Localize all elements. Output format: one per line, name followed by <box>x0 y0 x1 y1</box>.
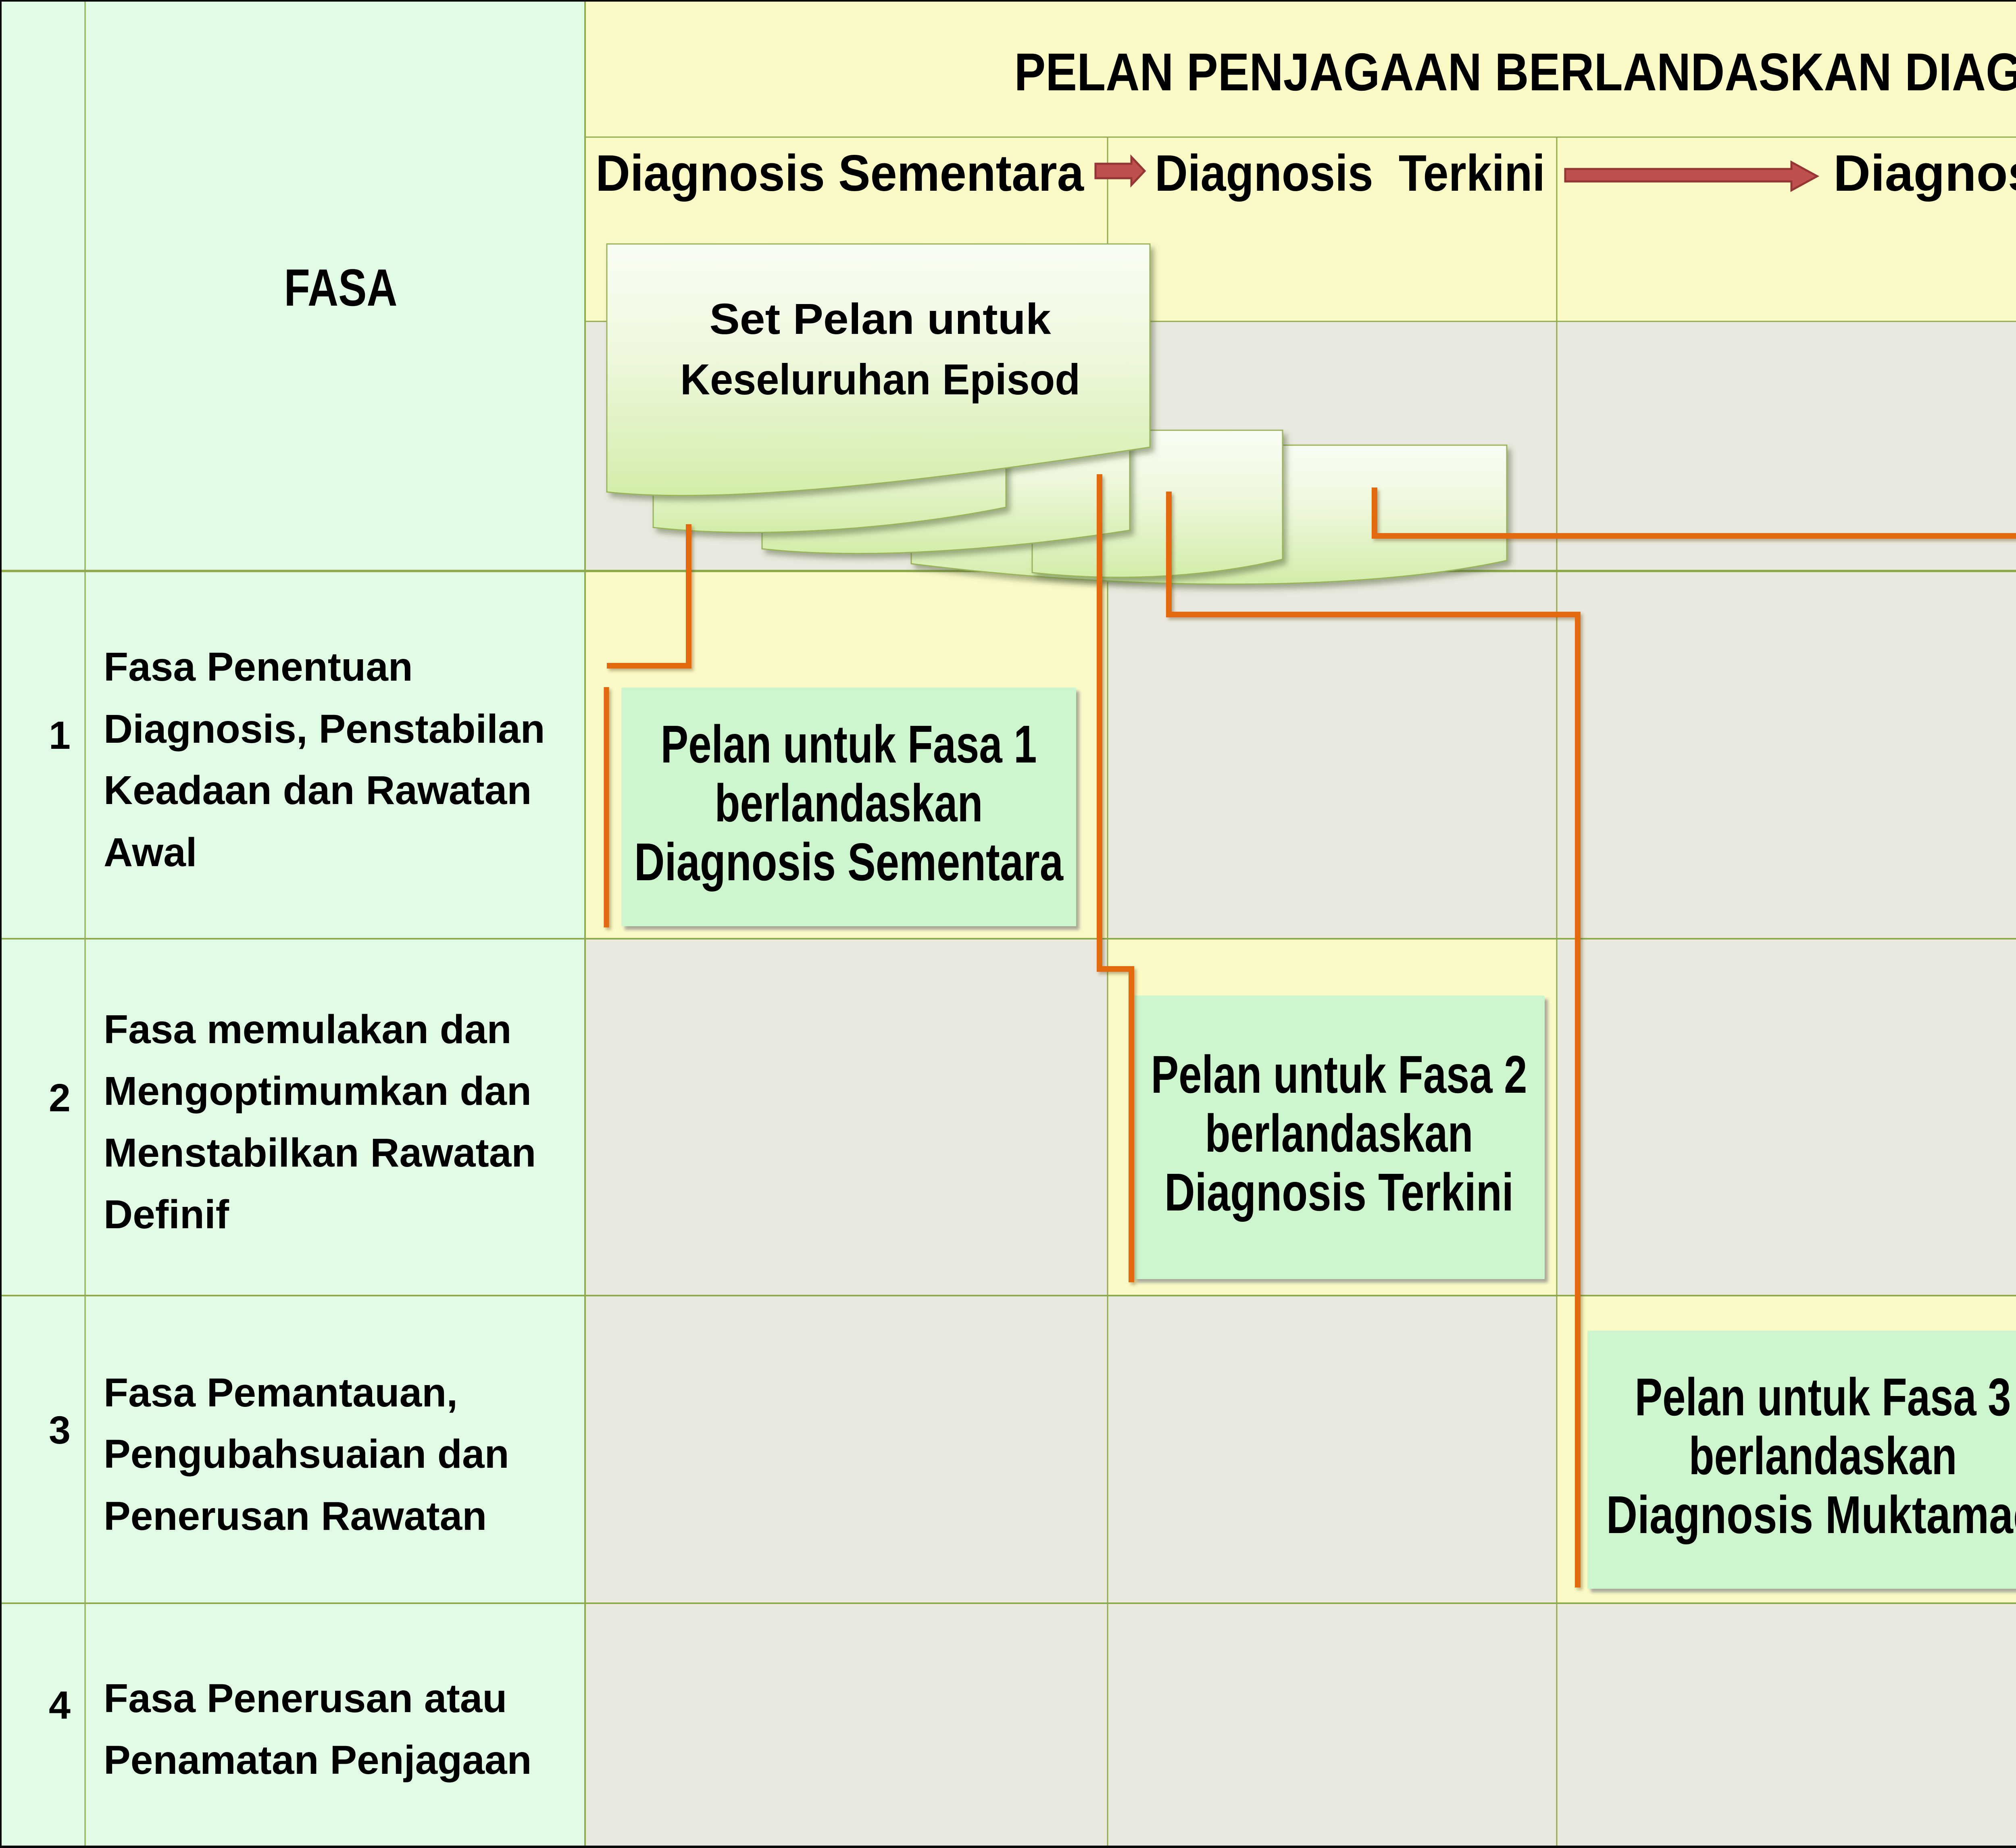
svg-text:Diagnosis Muktamad: Diagnosis Muktamad <box>1833 144 2016 202</box>
svg-text:Fasa Penentuan: Fasa Penentuan <box>104 644 413 690</box>
svg-text:berlandaskan: berlandaskan <box>715 773 983 833</box>
svg-text:Pelan untuk Fasa 1: Pelan untuk Fasa 1 <box>661 715 1037 774</box>
svg-text:1: 1 <box>49 713 71 757</box>
svg-text:Awal: Awal <box>104 830 197 875</box>
svg-text:Fasa memulakan dan: Fasa memulakan dan <box>104 1007 512 1052</box>
svg-text:Penamatan Penjagaan: Penamatan Penjagaan <box>104 1738 532 1783</box>
svg-text:4: 4 <box>49 1683 71 1727</box>
svg-text:Diagnosis, Penstabilan: Diagnosis, Penstabilan <box>104 706 545 752</box>
svg-text:berlandaskan: berlandaskan <box>1689 1426 1957 1485</box>
svg-text:Keseluruhan Episod: Keseluruhan Episod <box>680 355 1080 404</box>
svg-text:Set Pelan untuk: Set Pelan untuk <box>710 294 1052 343</box>
svg-text:Mengoptimumkan dan: Mengoptimumkan dan <box>104 1069 531 1114</box>
svg-text:Diagnosis Sementara: Diagnosis Sementara <box>596 144 1084 202</box>
svg-text:3: 3 <box>49 1408 71 1452</box>
svg-text:Pelan untuk Fasa 2: Pelan untuk Fasa 2 <box>1151 1045 1527 1104</box>
svg-text:Diagnosis Terkini: Diagnosis Terkini <box>1155 144 1545 202</box>
svg-text:Diagnosis Terkini: Diagnosis Terkini <box>1164 1163 1514 1222</box>
svg-text:Pelan untuk Fasa 3: Pelan untuk Fasa 3 <box>1635 1367 2011 1427</box>
svg-text:2: 2 <box>49 1076 71 1120</box>
svg-text:Diagnosis Sementara: Diagnosis Sementara <box>634 832 1064 892</box>
svg-text:Fasa Penerusan atau: Fasa Penerusan atau <box>104 1676 507 1721</box>
svg-text:Penerusan Rawatan: Penerusan Rawatan <box>104 1494 487 1539</box>
svg-text:Keadaan dan Rawatan: Keadaan dan Rawatan <box>104 768 531 813</box>
svg-text:Definif: Definif <box>104 1192 229 1237</box>
svg-text:PELAN PENJAGAAN BERLANDASKAN D: PELAN PENJAGAAN BERLANDASKAN DIAGNOSIS <box>1014 42 2016 102</box>
svg-text:Pengubahsuaian dan: Pengubahsuaian dan <box>104 1431 509 1477</box>
svg-text:FASA: FASA <box>284 258 398 317</box>
svg-text:Fasa Pemantauan,: Fasa Pemantauan, <box>104 1370 458 1415</box>
svg-text:Diagnosis Muktamad: Diagnosis Muktamad <box>1606 1485 2016 1544</box>
svg-text:berlandaskan: berlandaskan <box>1205 1104 1473 1163</box>
svg-text:Menstabilkan Rawatan: Menstabilkan Rawatan <box>104 1130 536 1175</box>
